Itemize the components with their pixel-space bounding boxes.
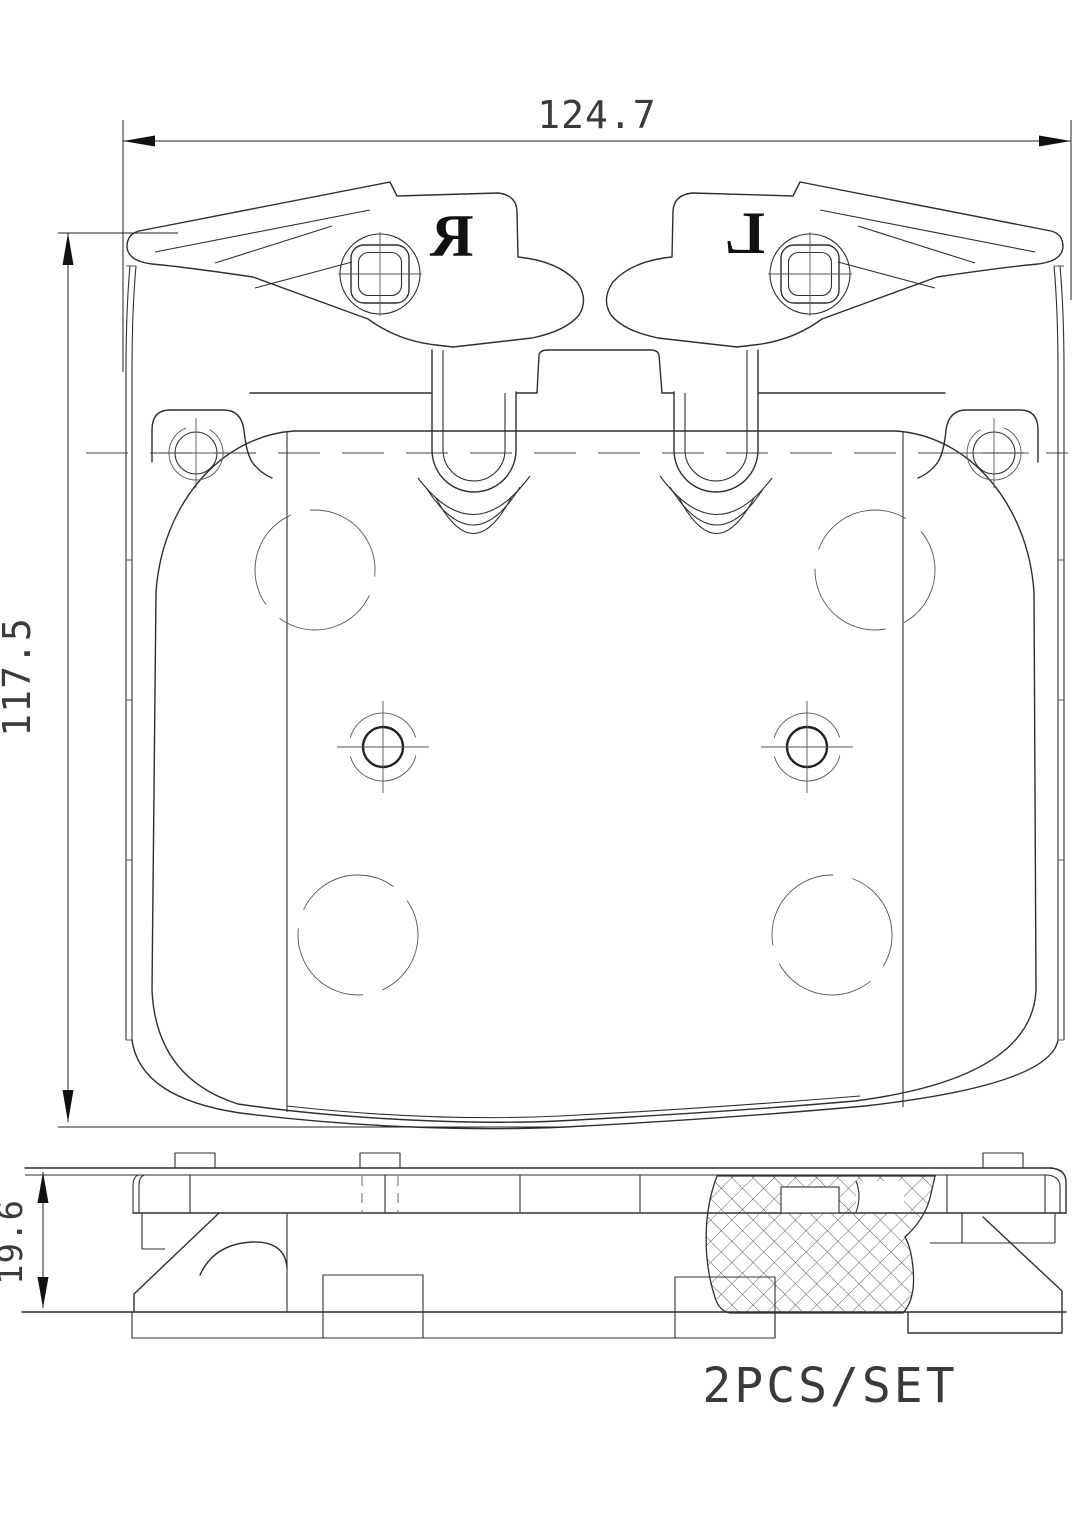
dimension-height: 117.5	[0, 233, 568, 1127]
drawing-sheet: R L	[0, 0, 1080, 1527]
chamfer-circles	[235, 490, 944, 1019]
set-quantity-label: 2PCS/SET	[702, 1358, 957, 1414]
dim-width-label: 124.7	[537, 93, 656, 137]
backplate-outline	[126, 266, 1064, 1129]
hatched-section	[706, 1176, 935, 1313]
brake-pad-technical-drawing: R L	[0, 0, 1080, 1527]
side-view	[22, 1153, 1066, 1338]
dim-thickness-label: 19.6	[0, 1199, 31, 1285]
stamp-letter-left-pad: L	[725, 200, 765, 266]
dimension-thickness: 19.6	[0, 1172, 49, 1308]
left-pilot-hole	[337, 701, 429, 793]
right-clip	[606, 182, 1063, 534]
front-view: R L	[86, 182, 1068, 1129]
right-pilot-hole	[761, 701, 853, 793]
dimension-width: 124.7	[123, 93, 1071, 372]
pad-section-left	[134, 1213, 287, 1312]
friction-pad-outline	[152, 431, 1036, 1122]
left-ear	[152, 410, 272, 490]
dim-height-label: 117.5	[0, 617, 39, 736]
stamp-letter-right-pad: R	[430, 203, 474, 269]
pad-section-right	[908, 1213, 1062, 1333]
left-clip	[127, 182, 584, 534]
pad-boss-left	[323, 1275, 423, 1338]
right-ear	[918, 410, 1038, 490]
